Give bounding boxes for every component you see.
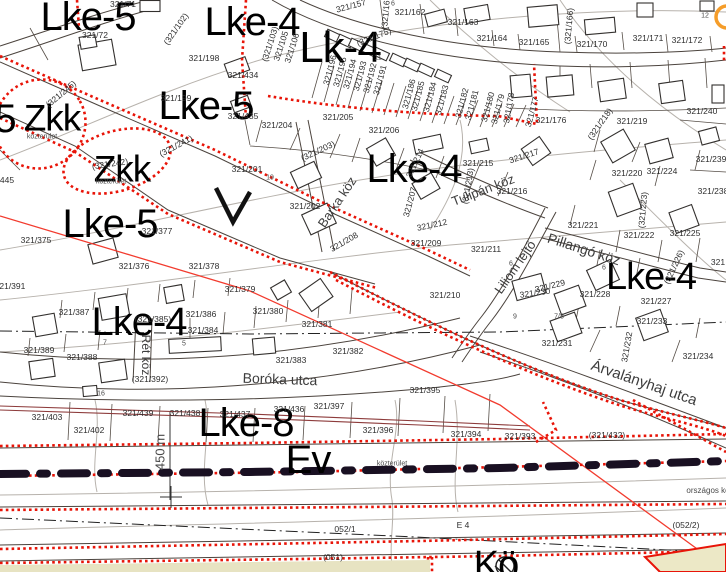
buildings <box>29 1 724 397</box>
building-footprint <box>164 285 185 304</box>
building-footprint <box>521 136 550 165</box>
road-axis-line <box>0 461 726 474</box>
building-footprint <box>636 309 669 340</box>
building-footprint <box>435 69 452 83</box>
building-footprint <box>698 127 719 145</box>
building-footprint <box>587 260 620 291</box>
v-mark <box>216 188 250 222</box>
building-footprint <box>669 205 699 234</box>
building-footprint <box>469 138 489 153</box>
map-linework <box>0 0 726 572</box>
ko-zone-symbol <box>495 557 514 572</box>
building-footprint <box>88 238 118 264</box>
building-footprint <box>584 17 615 35</box>
measurement-line <box>160 412 182 508</box>
building-footprint <box>510 74 532 98</box>
building-footprint <box>83 385 98 396</box>
building-footprint <box>554 285 586 315</box>
building-footprint <box>99 359 128 382</box>
building-footprint <box>29 358 55 379</box>
building-footprint <box>659 80 686 103</box>
building-footprint <box>413 134 443 154</box>
building-footprint <box>32 313 57 337</box>
zoning-map-viewport[interactable]: Lke-5Lke-4Lk-4Lke-55ZkkZkkLke-5Lke-4Lke-… <box>0 0 726 572</box>
building-footprint <box>271 280 292 300</box>
building-footprint <box>546 75 574 97</box>
building-footprint <box>637 3 653 17</box>
building-footprint <box>169 337 222 354</box>
building-footprint <box>79 35 97 50</box>
building-footprint <box>366 138 395 166</box>
building-footprint <box>299 279 333 312</box>
maroon-lines <box>0 406 530 430</box>
building-footprint <box>140 1 160 12</box>
building-footprint <box>252 337 275 355</box>
zone-fill-cream <box>0 544 726 572</box>
building-footprint <box>550 312 582 342</box>
orange-marker-icon <box>716 6 726 28</box>
building-footprint <box>224 57 249 78</box>
building-footprint <box>527 5 559 28</box>
building-footprint <box>608 183 641 216</box>
building-footprint <box>425 9 448 27</box>
building-footprint <box>98 294 129 321</box>
building-footprint <box>418 63 435 77</box>
building-footprint <box>645 138 673 164</box>
building-footprint <box>230 95 251 112</box>
building-footprint <box>302 203 337 235</box>
building-footprint <box>373 47 390 61</box>
building-footprint <box>598 78 627 101</box>
building-footprint <box>512 273 546 300</box>
building-footprint <box>601 129 636 163</box>
building-footprint <box>412 173 440 200</box>
building-footprint <box>712 85 724 103</box>
building-footprint <box>464 5 490 24</box>
building-footprint <box>700 1 714 11</box>
